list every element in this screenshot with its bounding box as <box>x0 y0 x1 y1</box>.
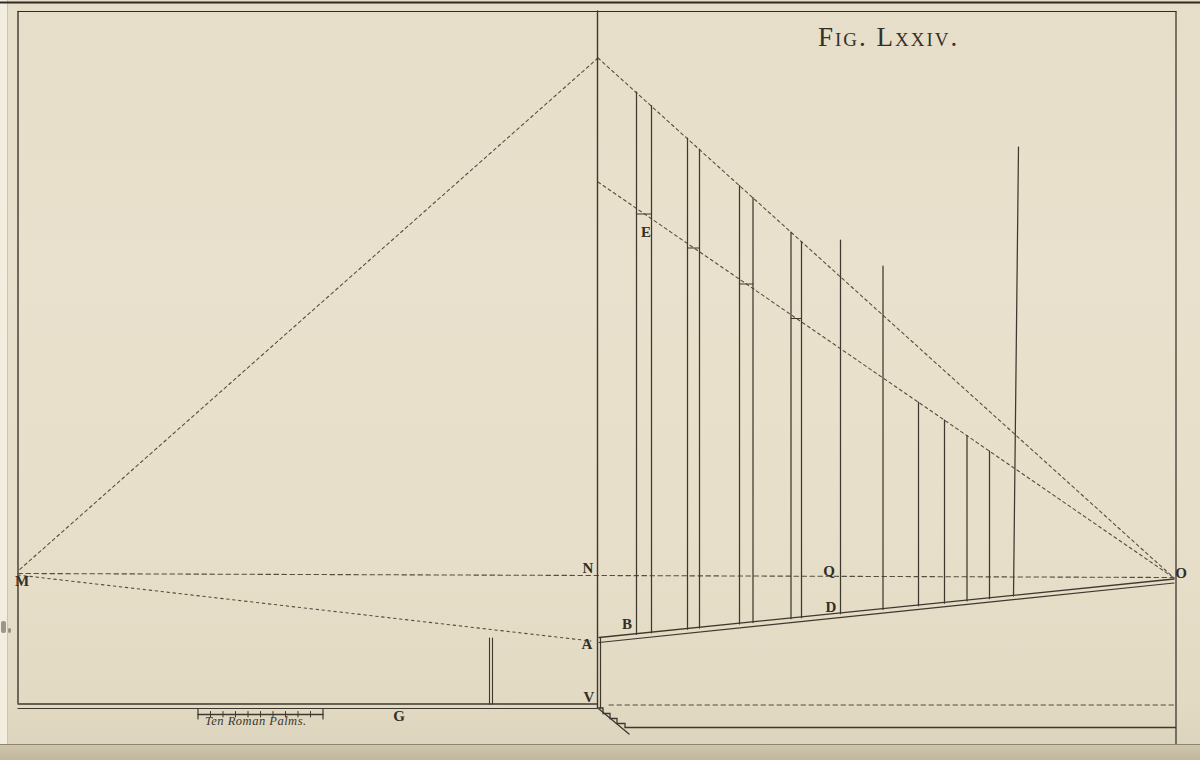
label-M: M <box>15 573 29 589</box>
engraved-plate-page: MNEQOBAVDG Fig. Lxxiv. Ten Roman Palms. <box>0 0 1200 760</box>
label-D: D <box>826 599 837 615</box>
label-O: O <box>1175 565 1187 581</box>
solid-ground-lower <box>599 583 1174 643</box>
label-N: N <box>583 560 594 576</box>
ink-speck-1 <box>1 621 6 633</box>
label-A: A <box>582 636 593 652</box>
figure-title: Fig. Lxxiv. <box>818 22 1038 53</box>
scale-bar-label: Ten Roman Palms. <box>205 714 307 729</box>
label-E: E <box>641 224 651 240</box>
dashed-M-to-A <box>18 575 591 641</box>
dashed-apex-to-O <box>598 58 1174 578</box>
label-G: G <box>393 708 405 724</box>
dashed-E-line-to-O <box>598 182 1174 578</box>
figure-canvas: MNEQOBAVDG <box>0 0 1200 760</box>
dashed-horizon-M-N-Q-O <box>18 574 1174 578</box>
label-B: B <box>622 616 632 632</box>
pole-15 <box>1014 147 1019 596</box>
base-steps-profile <box>597 708 1176 728</box>
label-Q: Q <box>823 563 835 579</box>
ink-speck-2 <box>8 628 11 633</box>
label-V: V <box>584 689 595 705</box>
solid-ground-upper <box>599 579 1174 638</box>
dashed-apex-to-M <box>18 58 598 571</box>
page-bottom-shadow <box>0 744 1200 760</box>
